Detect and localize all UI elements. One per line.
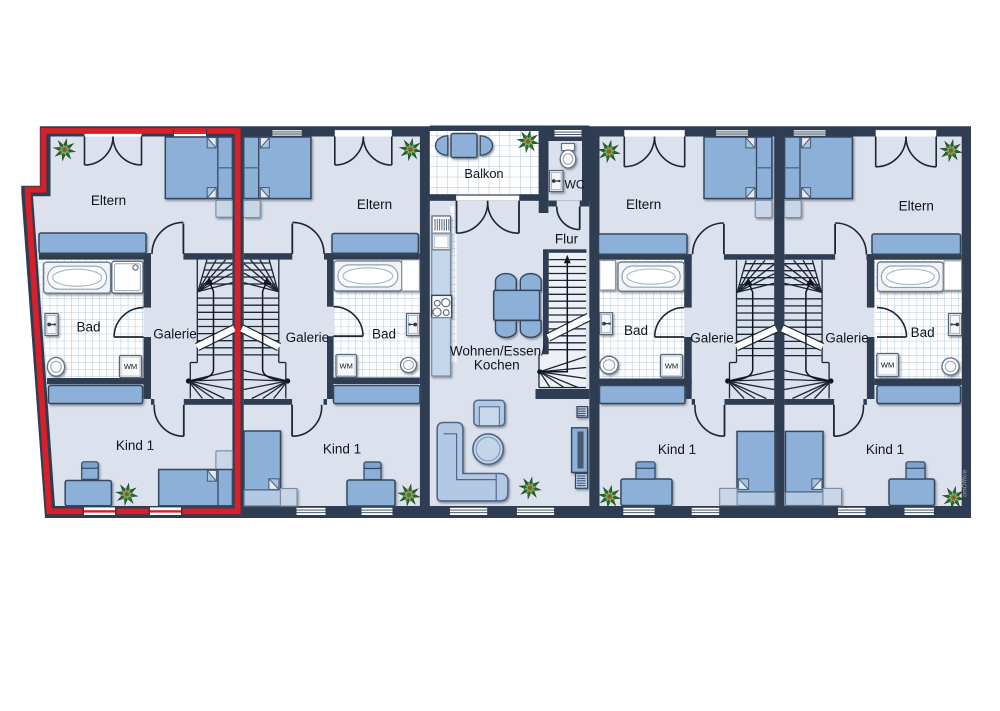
- svg-text:Kind 1: Kind 1: [866, 442, 904, 457]
- svg-text:Eltern: Eltern: [899, 199, 934, 214]
- svg-text:WM: WM: [340, 361, 353, 370]
- svg-text:WC: WC: [564, 178, 585, 192]
- svg-text:Galerie: Galerie: [153, 326, 197, 341]
- svg-text:onOffice: onOffice: [962, 469, 969, 497]
- svg-text:WM: WM: [881, 361, 894, 370]
- svg-text:Bad: Bad: [624, 323, 648, 338]
- svg-text:WM: WM: [665, 361, 678, 370]
- svg-text:Eltern: Eltern: [626, 197, 661, 212]
- svg-text:Kochen: Kochen: [474, 357, 520, 372]
- svg-text:Balkon: Balkon: [464, 166, 503, 181]
- svg-text:Bad: Bad: [911, 325, 935, 340]
- svg-text:Kind 1: Kind 1: [116, 438, 154, 453]
- svg-text:Bad: Bad: [76, 320, 100, 335]
- svg-text:Wohnen/Essen/: Wohnen/Essen/: [450, 344, 545, 359]
- svg-text:Galerie: Galerie: [825, 331, 869, 346]
- svg-text:Eltern: Eltern: [91, 193, 126, 208]
- svg-text:Galerie: Galerie: [286, 330, 330, 345]
- svg-text:Eltern: Eltern: [357, 197, 392, 212]
- svg-text:Kind 1: Kind 1: [658, 442, 696, 457]
- svg-text:Galerie: Galerie: [690, 331, 734, 346]
- svg-text:Flur: Flur: [555, 232, 579, 247]
- svg-text:WM: WM: [124, 362, 137, 371]
- svg-text:Bad: Bad: [372, 327, 396, 342]
- svg-text:Kind 1: Kind 1: [323, 442, 361, 457]
